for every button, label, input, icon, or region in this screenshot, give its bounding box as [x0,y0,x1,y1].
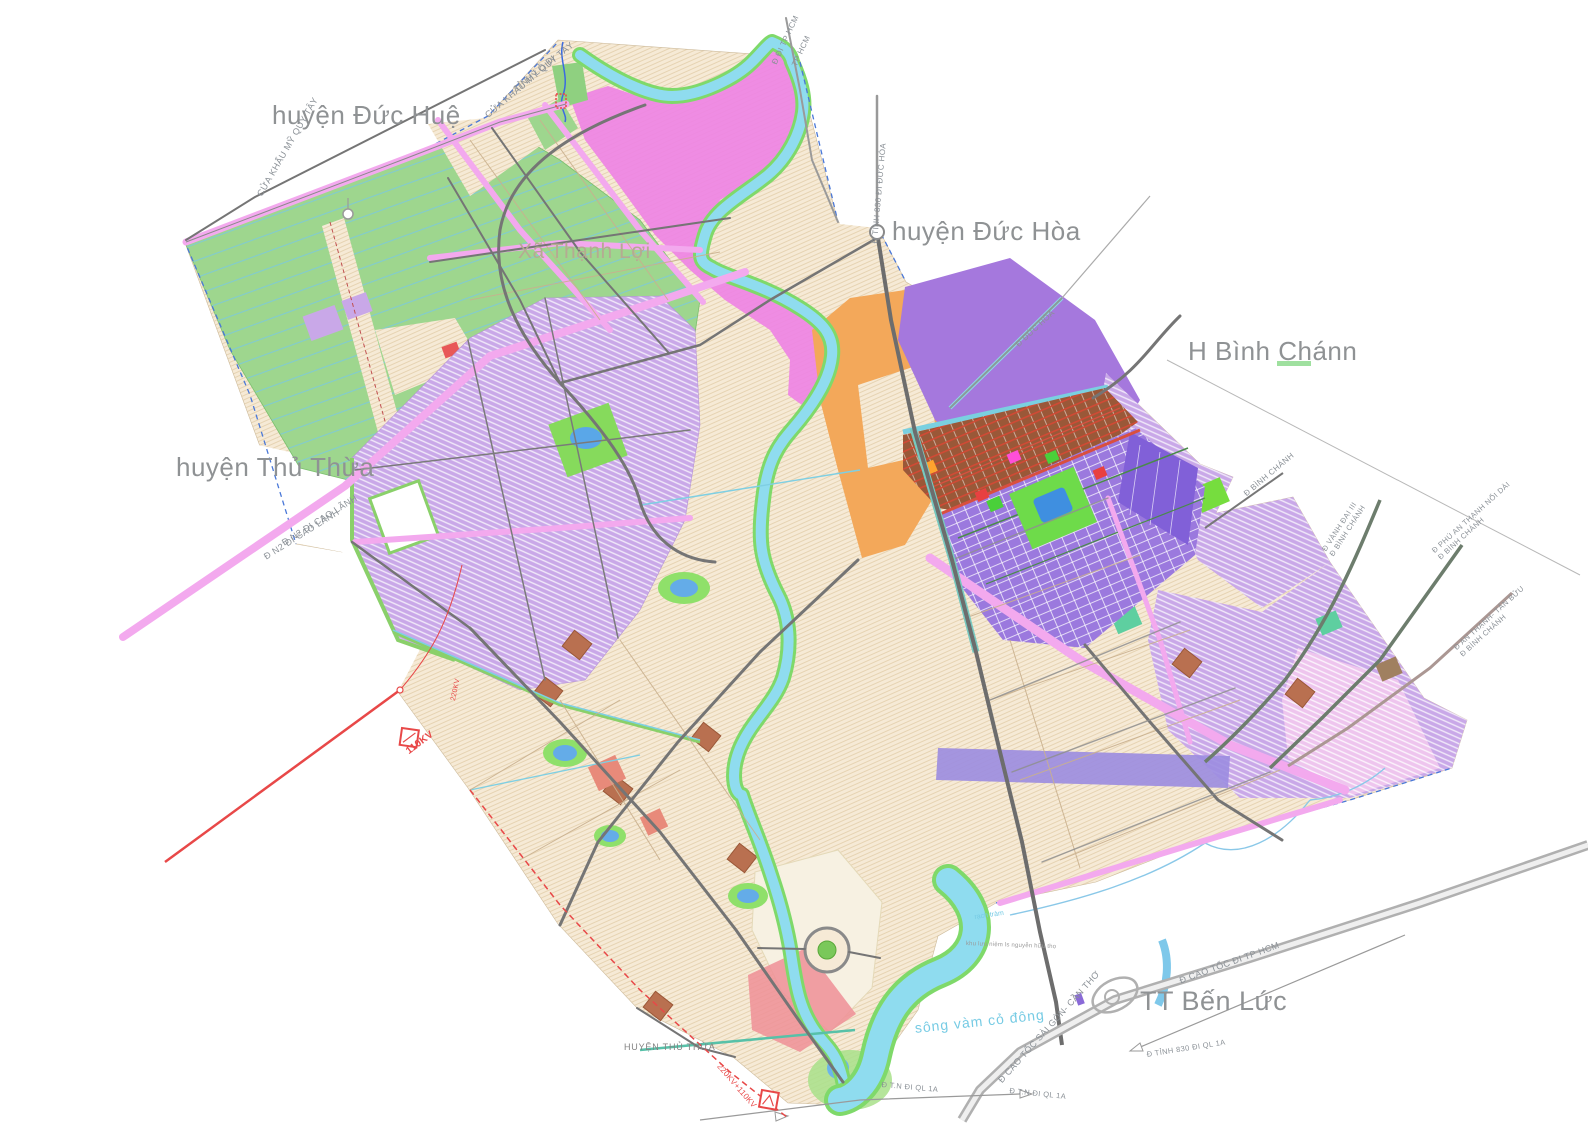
power-node [397,687,403,693]
region-label-thu-thua: huyện Thủ Thừa [176,452,374,483]
commune-label: Xã Thạnh Lợi [518,240,651,264]
pond [728,883,768,909]
road-duchoa-ext [1062,196,1150,298]
region-label-binh-chanh: H Bình Chánn [1188,336,1357,367]
planning-map: huyện Đức Huệ huyện Đức Hòa H Bình Chánn… [0,0,1588,1123]
region-label-thu-thua-small: HUYỆN THỦ THỪA [624,1042,716,1052]
green-mark [1277,361,1311,366]
region-label-ben-luc: TT Bến Lức [1140,986,1287,1017]
substation-icon [759,1090,779,1110]
powerline-110kv [165,690,400,862]
map-canvas [0,0,1588,1123]
pond [658,572,710,604]
roundabout [805,928,849,972]
region-label-duc-hoa: huyện Đức Hòa [892,216,1081,247]
